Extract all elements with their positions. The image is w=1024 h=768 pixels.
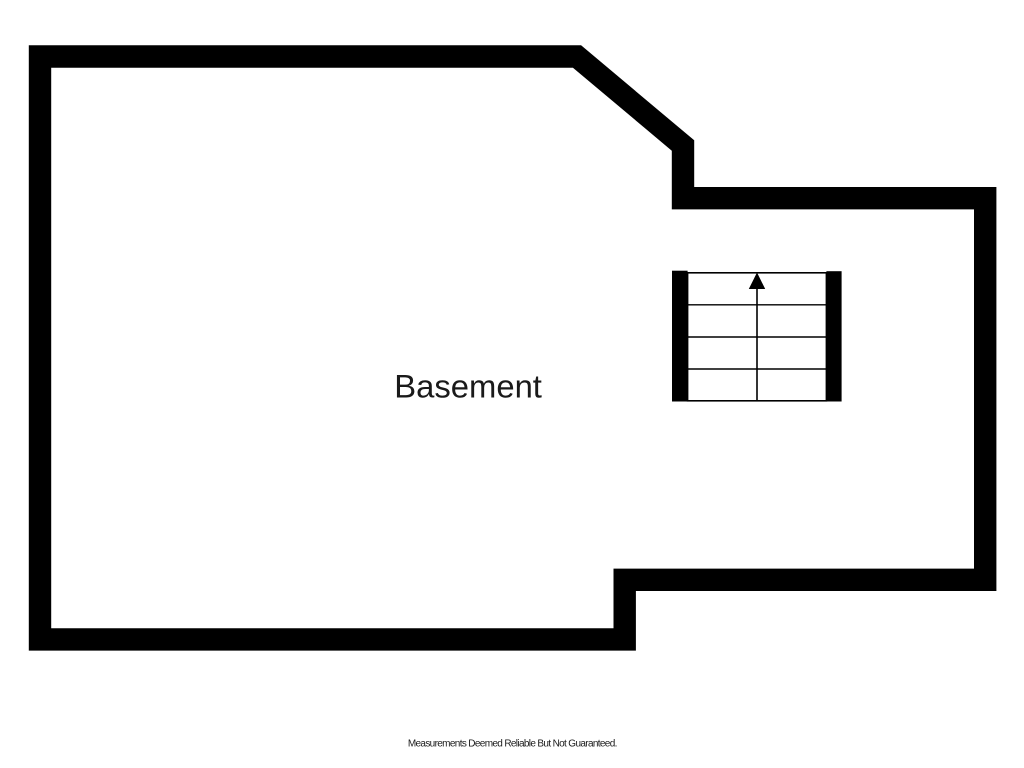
svg-text:Measurements Deemed Reliable B: Measurements Deemed Reliable But Not Gua… xyxy=(408,738,617,749)
svg-text:Basement: Basement xyxy=(394,368,542,405)
